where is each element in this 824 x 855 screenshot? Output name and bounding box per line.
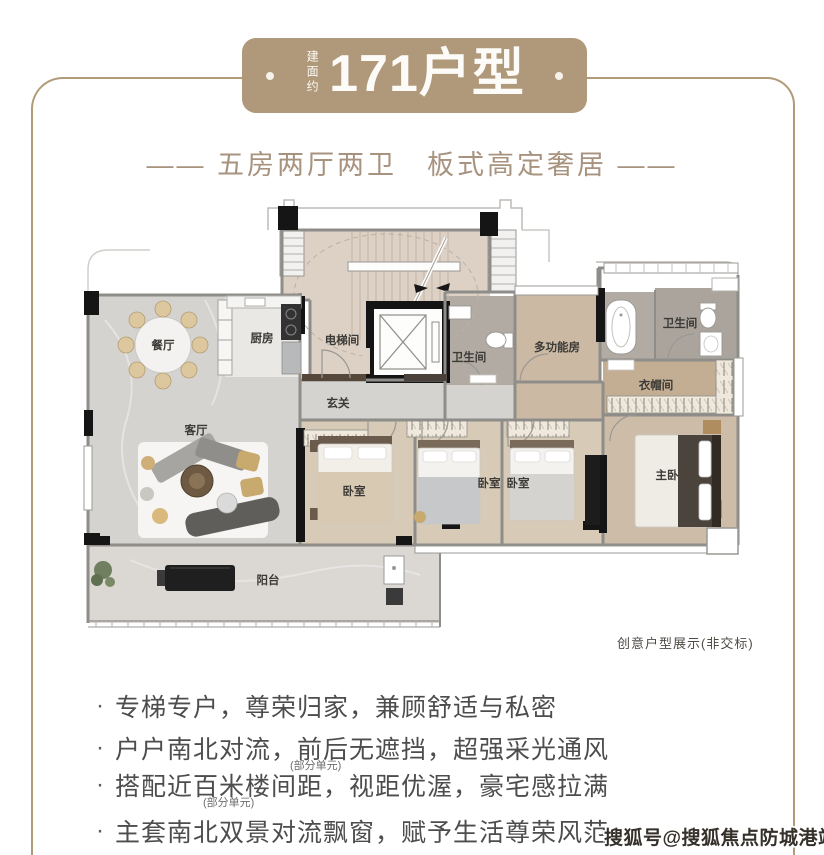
room-label-multi: 多功能房 <box>534 340 580 354</box>
bullet-icon: · <box>96 819 105 843</box>
feature-text: 搭配近百米楼间距，视距优渥，豪宅感拉满 <box>115 767 609 803</box>
room-label-balcony: 阳台 <box>257 573 280 587</box>
room-label-bedroom1: 卧室 <box>343 484 366 498</box>
elevator-shaft <box>362 301 450 383</box>
floor-plan: 餐厅 厨房 电梯间 玄关 卫生间 多功能房 卫生间 衣帽间 客厅 卧室 卧室 卧… <box>78 192 748 642</box>
room-label-foyer: 玄关 <box>327 396 350 410</box>
feature-text: 专梯专户，尊荣归家，兼顾舒适与私密 <box>115 688 557 724</box>
bedroom1-bed <box>310 436 392 524</box>
feature-subnote: (部分单元) <box>203 794 254 810</box>
plan-disclaimer: 创意户型展示(非交标) <box>617 633 754 652</box>
living-room-furniture <box>138 432 281 539</box>
feature-text: 户户南北对流，前后无遮挡，超强采光通风 <box>115 730 609 766</box>
bedroom2-bed <box>414 440 480 524</box>
room-label-master: 主卧 <box>656 468 679 482</box>
bullet-icon: · <box>96 694 105 718</box>
title-badge: 建面约 171户型 <box>242 38 587 113</box>
badge-area-label: 建面约 <box>304 50 321 102</box>
subtitle: —— 五房两厅两卫 板式高定奢居 —— <box>0 143 824 182</box>
room-label-bath2: 卫生间 <box>663 316 698 330</box>
room-label-closet: 衣帽间 <box>639 378 674 392</box>
feature-text: 主套南北双景对流飘窗，赋予生活尊荣风范 <box>115 813 609 849</box>
feature-item: · 搭配近百米楼间距，视距优渥，豪宅感拉满 <box>96 767 609 803</box>
page-title: 171户型 <box>329 48 525 100</box>
room-label-living: 客厅 <box>184 423 208 437</box>
room-label-bath1: 卫生间 <box>452 350 487 364</box>
room-label-bedroom2: 卧室 <box>478 476 501 490</box>
bullet-icon: · <box>96 736 105 760</box>
feature-item: · 主套南北双景对流飘窗，赋予生活尊荣风范 <box>96 813 609 849</box>
bullet-icon: · <box>96 773 105 797</box>
feature-item: · 户户南北对流，前后无遮挡，超强采光通风 <box>96 730 609 766</box>
room-label-kitchen: 厨房 <box>251 331 274 345</box>
room-label-elevator: 电梯间 <box>325 333 360 347</box>
room-label-dining: 餐厅 <box>151 338 175 352</box>
room-label-bedroom3: 卧室 <box>507 476 530 490</box>
feature-item: · 专梯专户，尊荣归家，兼顾舒适与私密 <box>96 688 557 724</box>
badge-dot-icon <box>266 72 274 80</box>
badge-dot-icon <box>555 72 563 80</box>
page: 建面约 171户型 —— 五房两厅两卫 板式高定奢居 —— <box>0 0 824 855</box>
watermark: 搜狐号@搜狐焦点防城港站 <box>604 823 824 850</box>
master-bed <box>635 420 722 527</box>
